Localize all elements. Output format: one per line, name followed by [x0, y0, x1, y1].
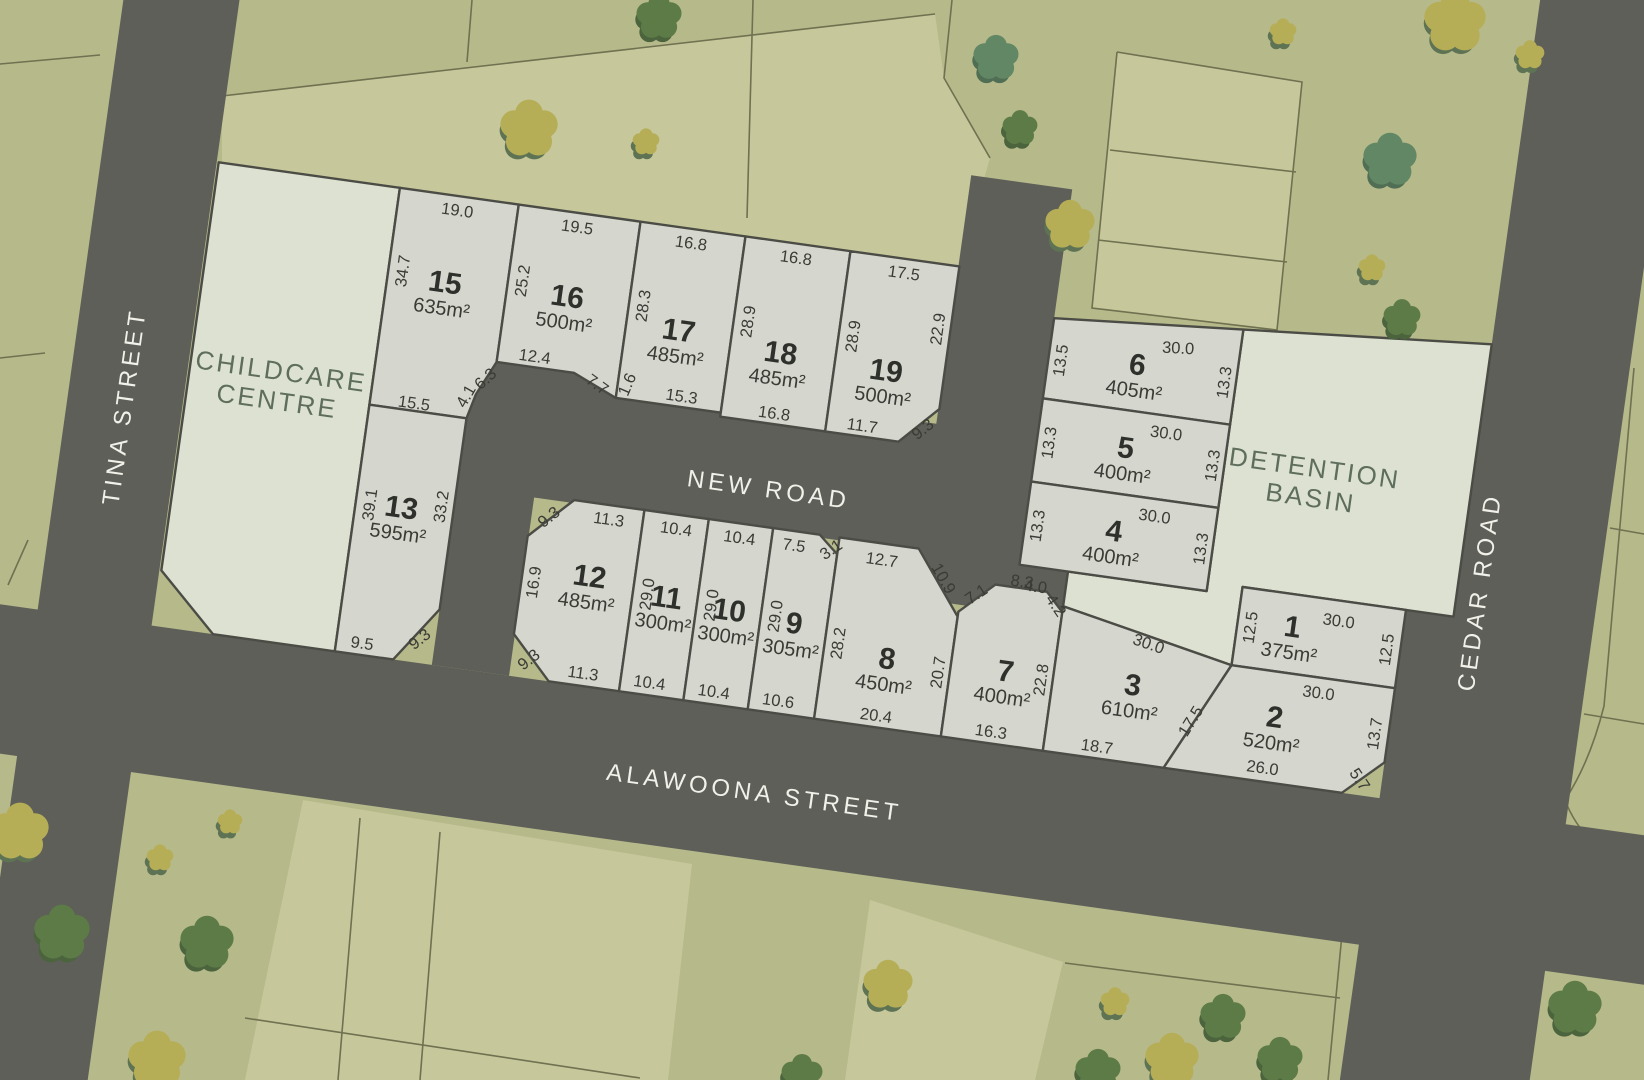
- subdivision-site-plan: 15635m²19.034.715.54.16.316500m²19.525.2…: [0, 0, 1644, 1080]
- dimension-label: 4.0: [1023, 576, 1048, 597]
- dimension-label: 7.5: [781, 535, 806, 556]
- dimension-label: 9.5: [349, 633, 374, 654]
- site-plan-canvas: 15635m²19.034.715.54.16.316500m²19.525.2…: [0, 0, 1644, 1080]
- north-east-neighbor-block: [1092, 52, 1302, 330]
- dimension-label: 30.0: [1162, 339, 1195, 359]
